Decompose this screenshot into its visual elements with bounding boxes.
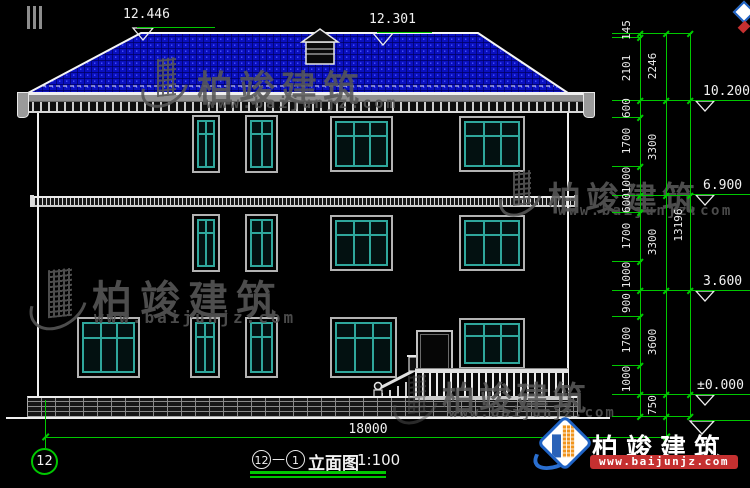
title-separator: — [272,452,285,467]
dimension-label: 2246 [645,44,661,88]
dimension-label: 750 [645,383,661,427]
window-wide [330,215,393,271]
window-wide [330,116,393,172]
top-elevation-value: 12.301 [369,12,416,27]
window-mullion [483,123,485,165]
dim-line-col3 [690,33,691,417]
eave-cornice-right-cap [583,92,595,118]
window-mullion [205,122,207,166]
window-mullion [252,232,271,234]
elevation-value: 10.200 [703,84,750,99]
window-mullion [500,123,502,165]
window-mullion [337,234,386,236]
window-mullion [500,325,502,362]
watermark-logo-icon [31,266,87,324]
window-narrow [245,214,278,272]
window-wide [459,215,525,271]
elevation-leader [692,290,750,291]
top-elevation-value: 12.446 [123,7,170,22]
window-mullion [261,122,263,166]
dimension-label: 3300 [645,125,661,169]
window-mullion [372,324,374,371]
window-mullion [353,222,355,264]
window-mullion [116,324,118,371]
dimension-label: 2101 [619,46,635,90]
window-wide [459,116,525,172]
watermark-fragment-top-left [27,6,44,29]
dimension-label: 13196 [671,203,687,247]
window-mullion [466,135,518,137]
bottom-dim-value: 18000 [340,422,396,437]
window-narrow [192,214,220,272]
watermark-logo-icon [395,373,439,419]
logo-website-text: www.baijunjz.com [590,455,738,469]
window-mullion [204,324,206,371]
drawing-scale: 1:100 [357,451,400,469]
window-mullion [337,135,386,137]
watermark-logo-icon [143,56,189,102]
window-mullion [100,324,102,371]
window-mullion [483,325,485,362]
dim-line-col2 [666,33,667,437]
watermark-website-text: www.baijunjz.com [94,308,296,327]
bottom-dim-extension-left [45,400,46,448]
window-wide [330,317,397,378]
elevation-leader [692,420,750,421]
window-mullion [261,221,263,265]
wall-left-edge [37,95,39,418]
elevation-value: 3.600 [703,274,742,289]
window-mullion [252,336,271,338]
floor-band-left-cap [30,195,34,207]
eave-cornice-left-cap [17,92,29,118]
dim-line-col1 [640,33,641,417]
window-mullion [199,133,213,135]
window-mullion [466,335,518,337]
watermark-website-text: www.baijunjz.com [449,405,616,421]
axis-bubble-12: 12 [31,448,58,475]
window-mullion [353,123,355,165]
window-mullion [337,337,390,339]
dimension-label: 3600 [645,320,661,364]
dimension-label: 3300 [645,220,661,264]
watermark-website-text: www.baijunjz.com [206,94,399,112]
dimension-label: 1000 [619,357,635,401]
dimension-label: 1700 [619,214,635,258]
elevation-drawing-canvas: 柏竣建筑 www.baijunjz.com 柏竣建筑 www.baijunjz.… [0,0,750,488]
watermark-website-text: www.baijunjz.com [558,203,733,219]
window-mullion [483,222,485,264]
window-narrow [245,115,278,173]
dimension-label: 1700 [619,119,635,163]
window-wide [459,318,525,369]
top-elevation-leader [377,32,432,33]
window-narrow [192,115,220,173]
window-mullion [84,337,133,339]
window-mullion [252,133,271,135]
window-mullion [500,222,502,264]
window-mullion [354,324,356,371]
elevation-value: 6.900 [703,178,742,193]
watermark-logo-icon [500,169,542,211]
elevation-leader [692,100,750,101]
title-axis-start-bubble: 12 [252,450,271,469]
window-mullion [369,222,371,264]
window-mullion [369,123,371,165]
window-mullion [205,221,207,265]
dimension-label: 1700 [619,318,635,362]
elevation-leader [692,394,750,395]
window-mullion [197,336,213,338]
floor-band-dentils [34,198,574,205]
floor-band-bottom-line [34,205,574,207]
title-axis-end-bubble: 1 [286,450,305,469]
elevation-value: ±0.000 [697,378,744,393]
top-elevation-leader [137,27,215,28]
window-mullion [466,234,518,236]
window-mullion [199,232,213,234]
window-mullion [261,324,263,371]
drawing-title: 立面图 [308,449,359,474]
elevation-leader [692,194,750,195]
